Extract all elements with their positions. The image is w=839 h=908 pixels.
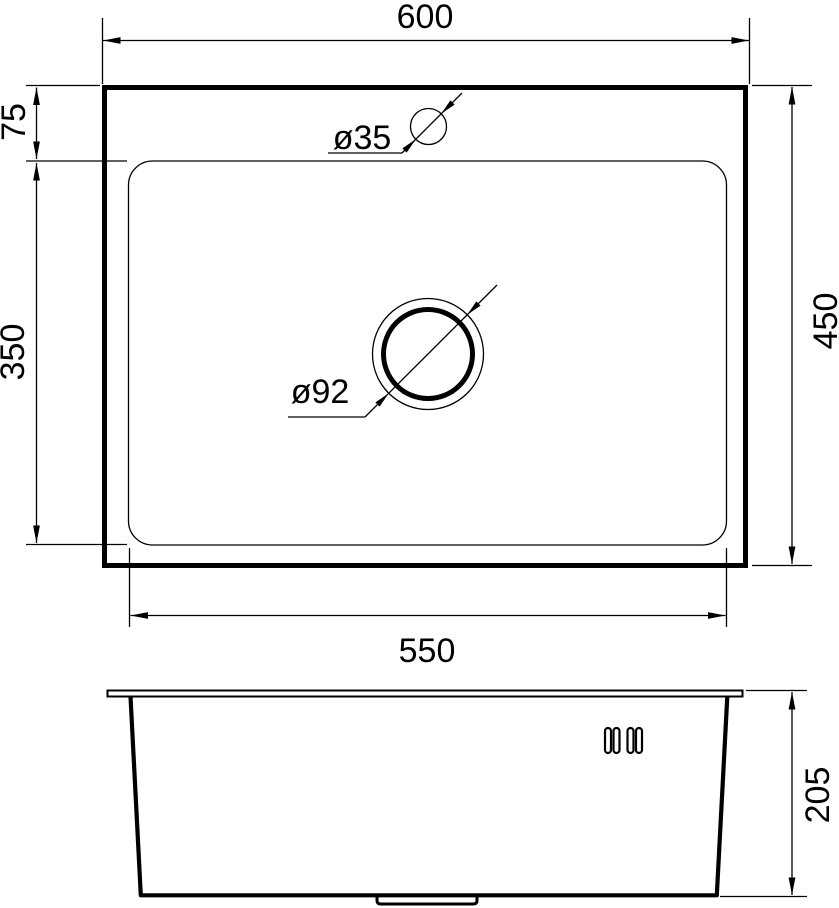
- overall-depth-label: 450: [807, 293, 839, 350]
- sink-technical-drawing: ø35 ø92 600 75 350 450 550: [0, 0, 839, 908]
- top-view: ø35 ø92: [105, 88, 746, 566]
- drawing-canvas: ø35 ø92 600 75 350 450 550: [0, 0, 839, 908]
- side-drain-fitting: [377, 897, 477, 904]
- side-bowl-outline: [131, 697, 728, 896]
- deck-offset-label: 75: [0, 103, 33, 141]
- overflow-slot-3: [628, 728, 634, 753]
- overflow-slot-4: [636, 728, 642, 753]
- overflow-slot-1: [605, 728, 611, 753]
- sink-outer-outline: [105, 88, 746, 566]
- overflow-slot-2: [614, 728, 620, 753]
- side-view: 205: [108, 691, 838, 905]
- overall-width-label: 600: [397, 0, 454, 36]
- inner-width-label: 550: [399, 632, 456, 670]
- side-rim-flange: [108, 691, 743, 697]
- faucet-hole-diameter-label: ø35: [333, 119, 392, 157]
- sink-bowl-outline: [129, 161, 727, 545]
- overflow-slots-icon: [605, 728, 642, 753]
- drain-hole-diameter-label: ø92: [291, 373, 350, 411]
- top-view-dimensions: 600 75 350 450 550: [0, 0, 839, 670]
- side-height-label: 205: [799, 767, 837, 824]
- bowl-depth-label: 350: [0, 324, 32, 381]
